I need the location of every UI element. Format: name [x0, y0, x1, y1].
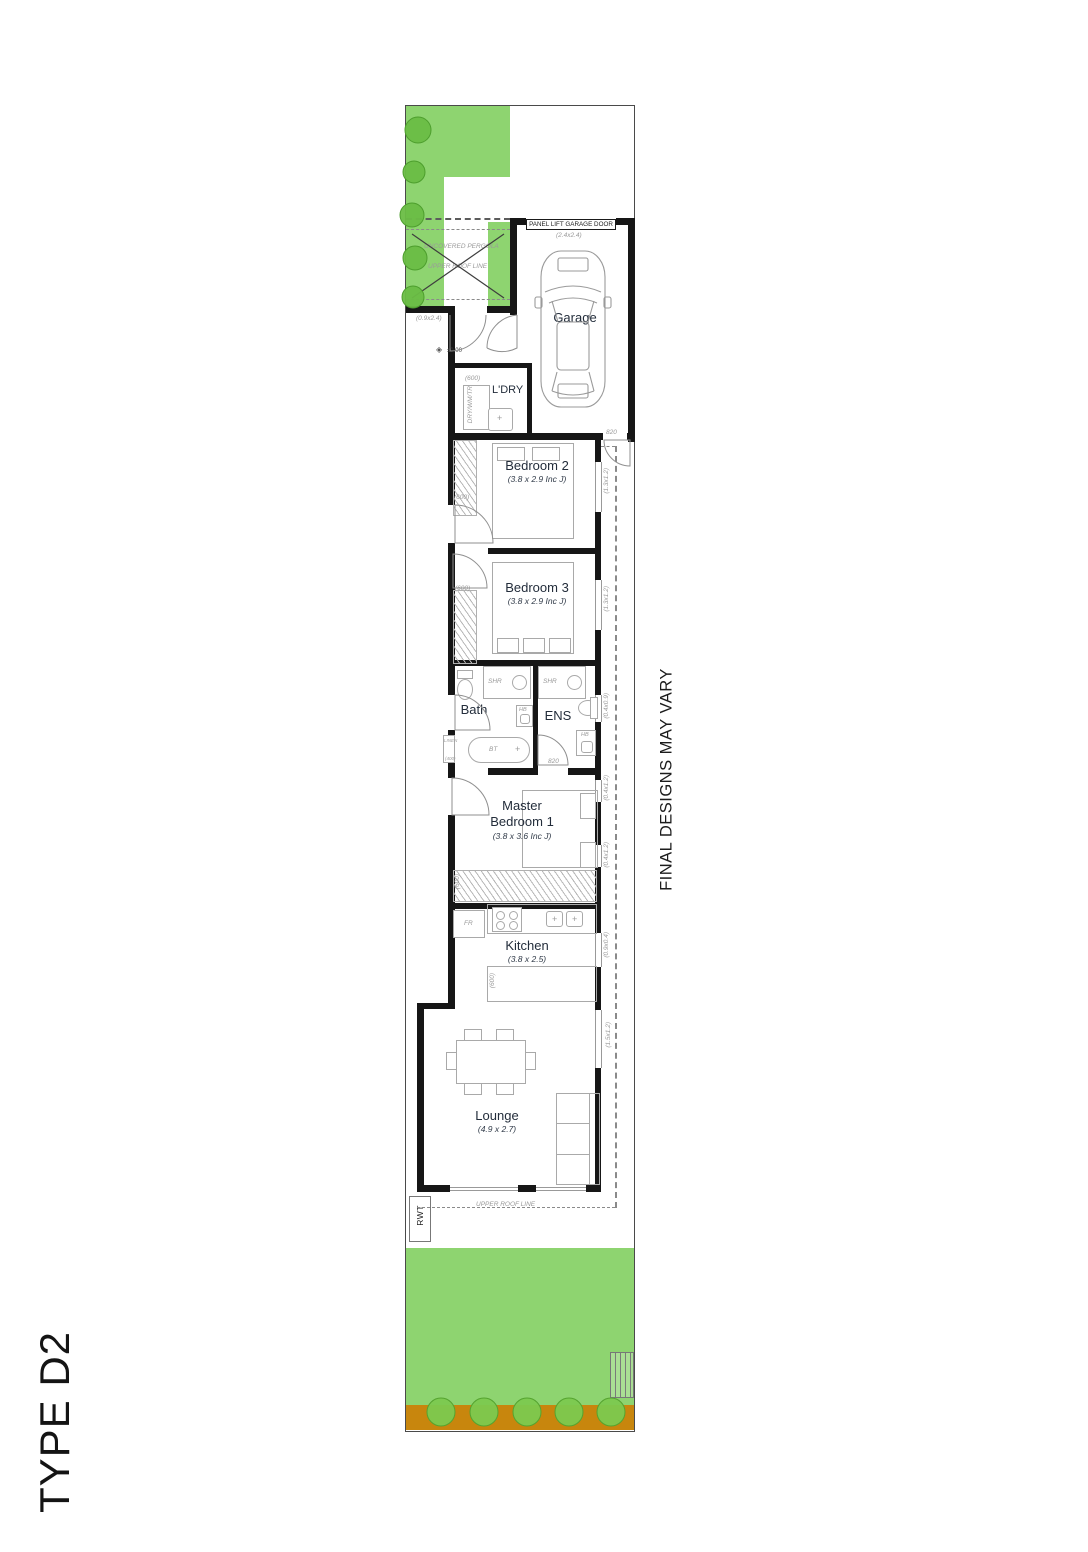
gate-slat — [615, 1353, 616, 1397]
dining-chair — [525, 1052, 536, 1070]
cooktop-burner-icon — [509, 921, 518, 930]
wall-south-c — [586, 1185, 601, 1192]
rear-door-opening — [604, 434, 627, 439]
pergola-roof-line-label: UPPER ROOF LINE — [428, 263, 487, 270]
window-label: (1.3x1.2) — [603, 586, 610, 612]
master-label-line2: Bedroom 1 — [462, 814, 582, 830]
roof-line-dashed-east — [615, 446, 617, 1208]
bedroom2-robe — [453, 440, 477, 516]
linen-size-label: (400) — [445, 756, 456, 761]
master-size: (3.8 x 3.6 Inc J) — [462, 831, 582, 842]
floor-plan-page: TYPE D2 FINAL DESIGNS MAY VARY RWT UNCOV… — [0, 0, 1088, 1552]
master-label-group: Master Bedroom 1 (3.8 x 3.6 Inc J) — [462, 798, 582, 842]
bedroom2-robe-size: (600) — [454, 494, 469, 501]
wall-south-a — [417, 1185, 450, 1192]
linen-label: LINEN — [444, 738, 457, 743]
wall-laundry-east — [527, 363, 532, 435]
bedroom3-size: (3.8 x 2.9 Inc J) — [477, 596, 597, 607]
window-label: (0.4x1.2) — [603, 775, 610, 801]
master-pillow — [580, 793, 596, 819]
bedroom3-bed-end — [549, 638, 571, 653]
wall-bed2-north — [448, 433, 603, 440]
sofa-cushion-line — [557, 1123, 589, 1124]
ens-label: ENS — [540, 708, 576, 724]
wall-garage-front-right — [616, 218, 635, 225]
sofa-cushion-line — [557, 1154, 589, 1155]
bedroom3-label-group: Bedroom 3 (3.8 x 2.9 Inc J) — [477, 580, 597, 607]
pergola-label: UNCOVERED PERGOLA — [424, 243, 499, 250]
kitchen-sink-bowl: + — [566, 911, 583, 927]
wall-entry-north-left — [406, 306, 450, 313]
bedroom3-bed-end — [523, 638, 545, 653]
garage-label: Garage — [530, 310, 620, 326]
laundry-appliances-label: DRY/WM/TR — [467, 386, 474, 423]
cooktop-burner-icon — [509, 911, 518, 920]
ens-basin-label: HB — [581, 732, 589, 738]
bath-label: Bath — [452, 702, 496, 718]
window-label: (0.9x0.4) — [603, 932, 610, 958]
bath-shower: SHR — [483, 666, 531, 699]
wall-laundry-north — [448, 363, 532, 368]
fridge-space: FR — [453, 910, 485, 938]
laundry-trough: + — [488, 408, 513, 431]
master-robe — [453, 870, 597, 902]
plan-type-title: TYPE D2 — [31, 1324, 79, 1520]
dining-chair — [464, 1083, 482, 1095]
wall-bed2-bed3-b — [488, 548, 600, 554]
laundry-label: L'DRY — [492, 384, 536, 398]
pergola-dashed-top — [406, 229, 510, 230]
dining-table — [456, 1040, 526, 1084]
lounge-size: (4.9 x 2.7) — [437, 1124, 557, 1135]
wall-bed2-north-stub — [627, 433, 635, 440]
wall-south-b — [518, 1185, 536, 1192]
bathtub-tap-icon: + — [515, 744, 520, 754]
gate-slat — [620, 1353, 621, 1397]
cooktop-burner-icon — [496, 911, 505, 920]
trough-tap-icon: + — [497, 413, 502, 423]
kitchen-island-size: (600) — [489, 973, 496, 988]
window-label: (0.4x1.2) — [603, 842, 610, 868]
front-garden-left-strip — [406, 106, 444, 312]
bath-basin-label: HB — [519, 707, 527, 713]
dining-chair — [496, 1083, 514, 1095]
backyard-grass — [406, 1248, 634, 1405]
fridge-label: FR — [464, 920, 473, 927]
kitchen-label-group: Kitchen (3.8 x 2.5) — [467, 938, 587, 965]
shower-drain-icon — [567, 675, 582, 690]
sofa-back-line — [589, 1094, 590, 1184]
master-pillow — [580, 842, 596, 868]
rear-gate — [610, 1352, 634, 1398]
ens-basin: HB — [576, 730, 596, 756]
ens-toilet-cistern — [590, 697, 598, 719]
bedroom2-label: Bedroom 2 — [477, 458, 597, 474]
bath-shower-label: SHR — [488, 678, 502, 685]
window-lounge-south-1 — [450, 1187, 518, 1191]
master-label-line1: Master — [462, 798, 582, 814]
bedroom2-label-group: Bedroom 2 (3.8 x 2.9 Inc J) — [477, 458, 597, 485]
bedroom3-robe — [453, 590, 477, 664]
garage-door-size-label: (2.4x2.4) — [556, 232, 582, 239]
lounge-label-group: Lounge (4.9 x 2.7) — [437, 1108, 557, 1135]
wall-garage-east — [628, 218, 635, 442]
wall-bath-master-b — [488, 768, 538, 775]
shower-drain-icon — [512, 675, 527, 690]
sink-tap-icon: + — [552, 914, 557, 924]
entry-size-label: (0.9x2.4) — [416, 315, 442, 322]
level-marker-icon: ◈ — [436, 345, 442, 354]
roof-line-label: UPPER ROOF LINE — [476, 1201, 535, 1208]
window-lounge-south-2 — [536, 1187, 586, 1191]
gate-slat — [625, 1353, 626, 1397]
garage-door-dashed-line — [406, 218, 510, 220]
cooktop-burner-icon — [496, 921, 505, 930]
basin-bowl-icon — [581, 741, 593, 753]
lounge-label: Lounge — [437, 1108, 557, 1124]
level-label: ±0.00 — [447, 348, 462, 354]
wall-entry-north-right — [487, 306, 517, 313]
window-label: (1.5x1.2) — [605, 1022, 612, 1048]
window-kitchen — [595, 933, 602, 967]
window-label: (0.4x0.9) — [603, 693, 610, 719]
bedroom3-label: Bedroom 3 — [477, 580, 597, 596]
wall-bed2-bed3-a — [448, 548, 453, 554]
rainwater-tank: RWT — [409, 1196, 431, 1242]
pergola-dashed-bottom — [406, 299, 510, 300]
sink-tap-icon: + — [572, 914, 577, 924]
pergola-garden-strip — [488, 222, 510, 308]
ens-shower: SHR — [538, 666, 586, 699]
cooktop — [492, 907, 522, 932]
bedroom3-bed-end — [497, 638, 519, 653]
kitchen-sink-bowl: + — [546, 911, 563, 927]
sofa — [556, 1093, 600, 1185]
kitchen-label: Kitchen — [467, 938, 587, 954]
wall-bath-master-a — [448, 768, 452, 775]
bedroom2-size: (3.8 x 2.9 Inc J) — [477, 474, 597, 485]
kitchen-size: (3.8 x 2.5) — [467, 954, 587, 965]
bath-toilet-cistern — [457, 670, 473, 679]
disclaimer-text: FINAL DESIGNS MAY VARY — [658, 660, 677, 900]
backyard-garden-bed — [406, 1405, 634, 1430]
bathtub: BT + — [468, 737, 530, 763]
rainwater-tank-label: RWT — [415, 1205, 425, 1226]
wall-west-lounge — [417, 1003, 424, 1192]
laundry-bench-size: (600) — [465, 375, 480, 382]
window-lounge-east — [595, 1010, 602, 1068]
wall-garage-front-left — [510, 218, 526, 225]
dining-chair — [446, 1052, 457, 1070]
ens-shower-label: SHR — [543, 678, 557, 685]
dining-chair — [496, 1029, 514, 1041]
ens-door-width-label: 820 — [548, 758, 559, 765]
wall-garage-west — [510, 218, 517, 315]
roof-line-dashed-corner — [601, 446, 615, 447]
dining-chair — [464, 1029, 482, 1041]
garage-door-label: PANEL LIFT GARAGE DOOR — [526, 219, 616, 230]
basin-bowl-icon — [520, 714, 530, 724]
bath-basin: HB — [516, 705, 533, 727]
window-label: (1.3x1.2) — [603, 468, 610, 494]
wall-bath-master-c — [568, 768, 600, 775]
bedroom3-robe-size: (600) — [455, 585, 470, 592]
gate-slat — [630, 1353, 631, 1397]
master-robe-size: (600) — [454, 874, 461, 889]
kitchen-island — [487, 966, 597, 1002]
bath-toilet-bowl — [457, 679, 473, 700]
bathtub-label: BT — [489, 746, 497, 753]
